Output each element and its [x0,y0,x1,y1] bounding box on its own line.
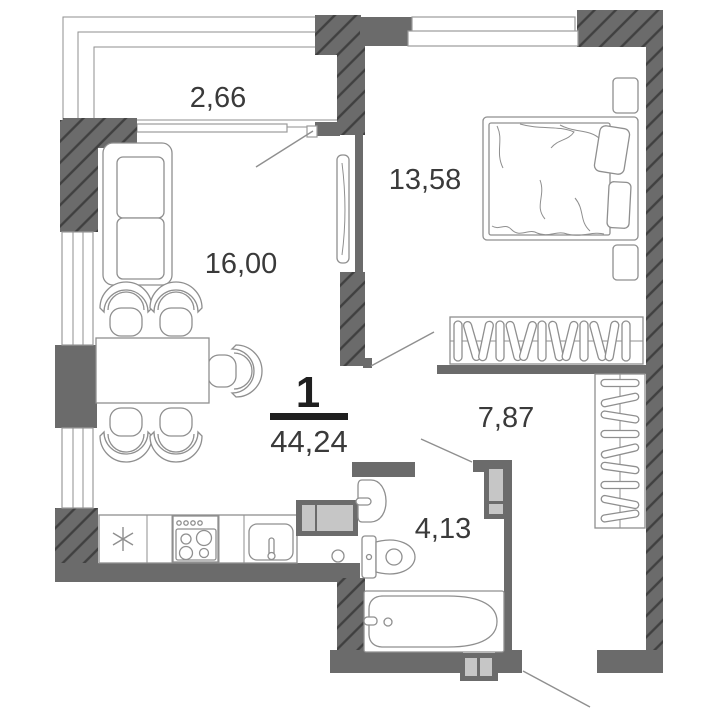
dining-set [96,282,262,462]
wall-step-balcony-door [315,122,340,136]
balcony-door-swing [256,131,313,167]
bathroom-area-label: 4,13 [415,513,471,545]
wall-divider-thin [355,133,363,274]
kitchen-counter [99,515,297,563]
rooms-count-label: 1 [296,368,320,417]
wall-entrance-left-piece [495,650,522,673]
balcony-area-label: 2,66 [190,82,246,114]
wall-right [646,17,663,655]
pillow [594,125,631,175]
chair [100,282,152,336]
wall-entrance-right-block [597,650,663,673]
entrance-door-swing [523,671,590,707]
wall-left-top [60,120,98,232]
wall-divider-step [363,358,372,368]
floor-plan-canvas: 2,66 13,58 16,00 7,87 4,13 1 44,24 [0,0,720,720]
chair [208,345,262,397]
wall-kitchen-bottom [55,563,360,582]
hallway-room [595,374,645,528]
toilet [362,536,415,578]
wall-bedroom-top-left [360,17,412,46]
pillow [607,181,631,228]
ventilation-shaft [484,464,511,519]
chair [150,282,202,336]
chair [100,408,152,462]
wall-bathroom-left [337,578,365,654]
bedroom-door-swing [371,332,434,366]
bedroom-wardrobe [450,317,643,364]
nightstand-bottom [613,245,638,280]
balcony [63,17,350,132]
window-living-top [62,232,93,345]
bed [483,117,638,240]
bathtub [364,591,504,652]
floor-plan: 2,66 13,58 16,00 7,87 4,13 1 44,24 [0,0,720,720]
wall-divider-lower [340,272,365,366]
washbasin [356,480,386,522]
hallway-wardrobe [595,374,645,528]
sofa [103,143,172,285]
apartment-summary: 1 44,24 [270,368,348,459]
wall-bedroom-bottom [437,365,646,374]
window-living-bottom [62,428,93,508]
wall-bathroom-bottom [330,650,463,673]
bedroom-area-label: 13,58 [389,164,462,196]
total-area-label: 44,24 [270,424,348,459]
hallway-area-label: 7,87 [478,402,534,434]
chair [150,408,202,462]
wall-bathroom-top-left [352,462,415,477]
balcony-glazing [137,124,287,132]
bedroom-room [450,78,643,364]
living-area-label: 16,00 [205,248,278,280]
entrance-threshold-block [460,653,498,681]
window-bedroom-top [408,17,578,46]
summary-divider [270,413,348,420]
wall-left-pier [55,345,97,428]
tv [337,155,349,263]
dining-table [96,338,209,403]
bathroom-detail-circle [332,550,344,562]
nightstand-top [613,78,638,113]
washing-machine [296,500,358,536]
bathroom-door-swing [421,439,472,462]
bathtub-spout [364,617,377,625]
